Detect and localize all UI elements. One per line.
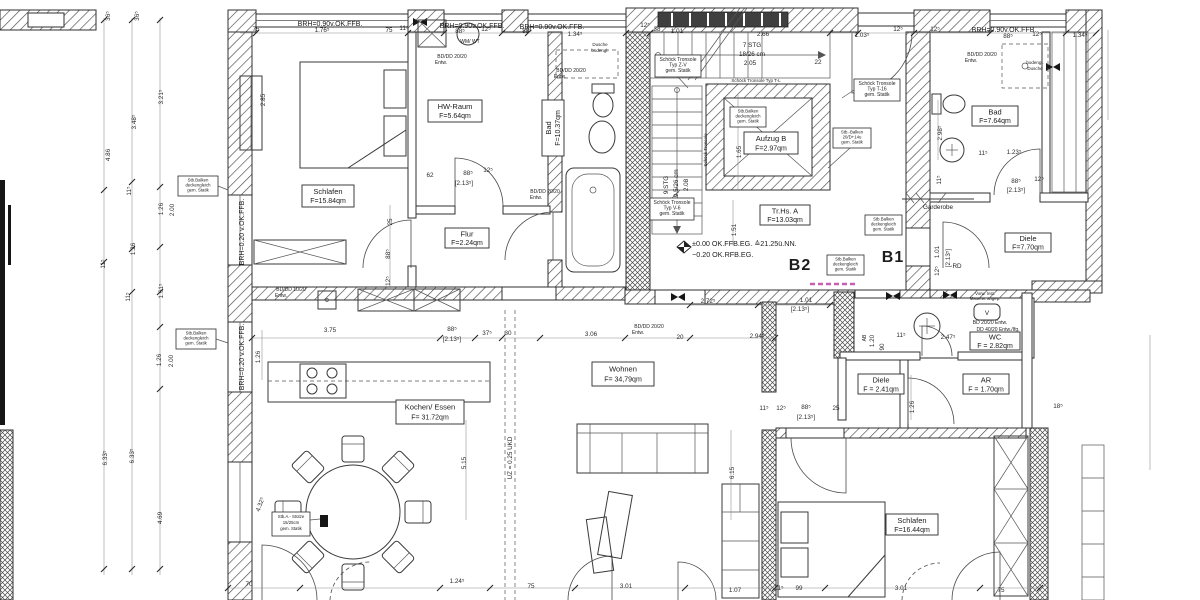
dimension-label: 88⁵ (1011, 178, 1021, 185)
dimension-label: 2.47⁵ (941, 334, 956, 341)
page-edge-marks (0, 10, 96, 600)
room-label-wc: WC F = 2.82qm (970, 332, 1020, 350)
dimension-label: 12⁵ (481, 26, 491, 33)
dimension-label: 11⁵ (978, 150, 988, 157)
room-label-schlafen-b2: Schlafen F=15.84qm (302, 185, 354, 207)
room-area: F = 2.41qm (863, 387, 899, 394)
wardrobe-schlafen-b1 (994, 436, 1028, 596)
note-line: gem. Statik (187, 188, 209, 193)
drain-note-bad-b1: BD/DD 20/20 Entw. (965, 52, 997, 64)
dimension-label: 11⁵ (759, 405, 769, 412)
note-stbbalken-2: Stb.Balken deckengleich gem. Statik (865, 215, 902, 235)
room-name: Bad (544, 121, 553, 134)
dimension-label: 1.76⁵ (315, 27, 330, 34)
dimension-label: 1.34⁵ (568, 31, 583, 38)
room-area: F=13.03qm (767, 217, 803, 224)
drain-line: Entw. (435, 60, 447, 66)
dimension-label: [2.13⁵] (797, 414, 816, 421)
dimension-label: 11⁵ (100, 259, 107, 269)
dimension-label: 5.15 (461, 456, 468, 469)
wardrobe-schlafen-b2 (254, 240, 346, 264)
label-ab-shaft: AB (862, 334, 868, 341)
bed-schlafen-b2 (240, 62, 408, 168)
dimension-label: 70 (245, 581, 253, 588)
sill-label-brh90: BRH=0.90v.OK.FFB. (298, 21, 363, 28)
dimension-label: 1.26 (156, 353, 163, 366)
dimension-label: 11⁵ (774, 585, 784, 592)
drain-note-hw: BD/DD 20/20 Entw. (435, 54, 467, 66)
room-name: AR (981, 376, 992, 385)
dimension-label: 1.51 (731, 223, 738, 236)
room-name: Tr.Hs. A (772, 207, 798, 216)
dimension-label: 1.01 (800, 297, 813, 304)
note-stbbalken-1: Stb.Balken deckengleich gem. Statik (730, 107, 766, 127)
dimension-label: 12⁵ (893, 26, 903, 33)
dimension-label: [2.13⁵] (455, 180, 474, 187)
dimension-label: 37⁵ (482, 330, 492, 337)
note-line: gem. Statik (665, 68, 691, 74)
dimension-label: 75 (527, 583, 535, 590)
dimension-label: 1.26 (130, 242, 137, 255)
room-name: Wohnen (609, 365, 637, 374)
room-area: F=15.84qm (310, 198, 346, 205)
dimension-label: 2.00 (168, 354, 175, 367)
drain-line: Entw. (632, 330, 644, 336)
dimension-label: 75 (997, 587, 1005, 594)
note-line: gem. Statik (835, 267, 857, 272)
label-dusche-2: bodengl. (1026, 60, 1043, 65)
unit-label-b2: B2 (789, 257, 811, 274)
exterior-wall-right (1030, 10, 1104, 600)
dimension-label: 4.86 (105, 148, 112, 161)
dimension-label: 3.21⁵ (158, 89, 165, 104)
kitchen-counter (268, 362, 490, 402)
dimension-label: 2.98⁵ (937, 125, 944, 140)
label-vorwand-2: Mauerw. angep. (970, 296, 1001, 301)
sill-label-brh90: BRH=0.90v.OK.FFB. (440, 23, 505, 30)
dimension-label: 12⁵ (385, 276, 392, 286)
room-label-hw-raum: HW-Raum F=5.64qm (428, 100, 482, 122)
dimension-label: 11⁵ (936, 175, 943, 185)
column (320, 515, 328, 527)
dimension-label: 90 (879, 343, 886, 351)
dimension-label: 1.01 (671, 28, 684, 35)
note-line: gem. Statik (841, 140, 863, 145)
note-stbbalken-left-2: Stb.Balken deckengleich gem. Statik (176, 329, 228, 349)
room-label-aufzug: Aufzug B F=2.97qm (744, 132, 798, 154)
label-dusche-2b: Dusche (1027, 66, 1043, 71)
stair-run-label: 2.08 (683, 178, 690, 191)
dimension-label: 99 (795, 585, 803, 592)
dimension-label: 88⁵ (801, 404, 811, 411)
stair-riser-label: 18/26 cm (739, 51, 765, 58)
stair-steps-label: 9 STG (663, 176, 670, 194)
room-area: F= 34,79qm (604, 377, 642, 384)
dimension-label: 1.61⁵ (158, 283, 165, 298)
dimension-label: [2.13⁵] (1007, 187, 1026, 194)
room-name: Schlafen (313, 187, 342, 196)
room-label-wohnen: Wohnen F= 34,79qm (592, 362, 654, 386)
dimension-label: 1.65 (736, 145, 743, 158)
label-dusche-1b: bodengl. (591, 48, 608, 53)
dimension-label: 12⁵ (930, 26, 940, 33)
note-line: gem. Statik (864, 92, 890, 98)
sill-label-brh20: BRH=0.20 v.OK.FFB. (239, 324, 246, 391)
drain-line: Entw. (965, 58, 977, 64)
note-stbbalken-20d: Stb.-Balken 20/D+14u gem. Statik (828, 128, 871, 168)
dimension-label: 88⁵ (463, 170, 473, 177)
dimension-label: 3.06 (585, 331, 598, 338)
room-area: F= 31.72qm (411, 415, 449, 422)
floor-plan-page: Schlafen F=15.84qm HW-Raum F=5.64qm Bad … (0, 0, 1200, 600)
dimension-label: 88⁵ (455, 28, 465, 35)
room-area: F = 1.70qm (968, 387, 1004, 394)
tronsole-side-label: Schöck Tronsole (703, 133, 708, 167)
room-label-diele2: Diele F = 2.41qm (858, 374, 904, 394)
room-area: F=7.70qm (1012, 245, 1044, 252)
dimension-label: 11⁵ (126, 186, 133, 196)
drain-line: BD 20/20 Entw. (973, 320, 1007, 326)
room-label-garderobe: Garderobe (923, 204, 954, 211)
dimension-label: 12⁵ (1032, 31, 1042, 38)
dimension-label: 36⁵ (134, 11, 141, 21)
room-area: F = 2.82qm (977, 343, 1013, 350)
stair-run-label: 2.05 (744, 60, 757, 67)
dimension-label: 1.26 (909, 400, 916, 413)
drain-line: Entw. (530, 195, 542, 201)
dimension-label: 88⁵ (447, 326, 457, 333)
room-label-bad-b1: Bad F=7.64qm (972, 106, 1018, 126)
room-name: WC (989, 333, 1002, 342)
dimension-label: [2.13⁵] (791, 306, 810, 313)
room-name: Schlafen (897, 516, 926, 525)
room-name: Diele (1019, 234, 1036, 243)
dimension-label: 11⁵ (125, 292, 132, 302)
dimension-label: 62 (426, 172, 434, 179)
bathroom-b2-fixtures (556, 50, 620, 272)
dimension-label: 25 (387, 218, 394, 226)
room-area: F=16.44qm (894, 527, 930, 534)
dimension-label: 2.94⁵ (750, 333, 765, 340)
note-tronsole-t16: Schöck Tronsole Typ T-16 gem. Statik (842, 79, 900, 101)
room-label-diele-b1: Diele F=7.70qm (1005, 233, 1051, 252)
interior-walls (252, 32, 1090, 600)
dimension-label: 3.01 (895, 585, 908, 592)
dimension-label: 88⁵ (522, 28, 532, 35)
dimension-label: 12⁵ (640, 22, 650, 29)
label-uz-beam: UZ = 0.25 UKD (507, 436, 514, 479)
drain-line: DD 40/20 Entw./Ifg. (976, 327, 1019, 333)
room-area: F=2.24qm (451, 240, 483, 247)
room-name: Kochen/ Essen (405, 403, 455, 412)
note-tronsole-v6: Schöck Tronsole Typ V-6 gem. Statik (650, 190, 694, 220)
note-line: gem. Statik (659, 211, 685, 217)
sofa (577, 424, 708, 473)
dimension-label: 1.03⁵ (855, 32, 870, 39)
dimension-label: 1.26 (158, 202, 165, 215)
shelf-cabinet (722, 484, 759, 598)
dimension-label: 6.15 (729, 466, 736, 479)
dimension-label: 1.07 (729, 587, 742, 594)
level-marker-icon (677, 241, 691, 253)
dimension-label: 3.75 (324, 327, 337, 334)
label-dusche-1: Dusche (592, 42, 608, 47)
dimension-label: 12⁵ (483, 167, 493, 174)
dimension-label: 2.85 (260, 93, 267, 106)
dimension-label: 4.69 (157, 511, 164, 524)
room-name: Flur (461, 230, 474, 239)
level-line-1: ±0.00 OK.FFB.EG. ≙21.25ü.NN. (692, 239, 797, 248)
room-area: F=5.64qm (439, 113, 471, 120)
dimension-label: 12⁵ (934, 266, 941, 276)
note-tronsole-zv: Schöck Tronsole Typ Z-V gem. Statik (655, 55, 701, 88)
dimension-label: 30 (504, 330, 512, 337)
drain-line: Entw. (275, 293, 287, 299)
room-area: F=2.97qm (755, 146, 787, 153)
dimension-label: 1.20 (869, 334, 876, 347)
dimension-label: 18⁵ (1053, 403, 1063, 410)
note-line: 15/25cm (283, 520, 300, 525)
dimension-label: 3.48⁵ (131, 114, 138, 129)
note-line: gem. Statik (737, 119, 759, 124)
room-label-flur: Flur F=2.24qm (445, 228, 489, 248)
dimension-label: 2.66 (757, 31, 770, 38)
dimension-label: 2.72⁵ (701, 298, 716, 305)
label-wm-wt: WM/ WT (460, 39, 479, 45)
dimension-label: 6.33⁵ (102, 450, 109, 465)
dimension-label: [2.13⁵] (945, 249, 952, 268)
dimension-label: 88⁵ (1003, 33, 1013, 40)
unit-label-b1: B1 (882, 249, 904, 266)
dimension-label: 1.34⁵ (1073, 32, 1088, 39)
sill-label-brh20: BRH=0.20 v.OK.FFB. (239, 199, 246, 266)
floor-plan-canvas: Schlafen F=15.84qm HW-Raum F=5.64qm Bad … (0, 0, 1200, 600)
dimension-label: 20 (676, 334, 684, 341)
drain-line: Entw. (554, 74, 566, 80)
bed-schlafen-b1 (778, 502, 885, 597)
room-label-bad-b2: Bad F=10.37qm (542, 100, 564, 156)
note-line: gem. Statik (280, 526, 302, 531)
dimension-label: 1.24⁵ (450, 578, 465, 585)
dimension-label: 6.33⁵ (129, 448, 136, 463)
dimension-label: 11⁵ (399, 25, 409, 32)
dimension-label: 11⁵ (896, 332, 906, 339)
dimension-label: 22 (814, 59, 822, 66)
dimension-label: 1.26 (255, 350, 262, 363)
note-line: gem. Statik (185, 341, 207, 346)
dimension-label: 12⁵ (1034, 176, 1044, 183)
room-name: Bad (988, 108, 1001, 117)
room-name: Diele (872, 376, 889, 385)
dimension-label: 2.00 (169, 203, 176, 216)
room-name: HW-Raum (438, 102, 473, 111)
room-area: F=7.64qm (979, 118, 1011, 125)
stair-steps-label: 7 STG (743, 42, 761, 49)
dimension-label: 88⁵ (385, 249, 392, 259)
dimension-label: 3.01 (620, 583, 633, 590)
room-label-ar: AR F = 1.70qm (963, 374, 1009, 394)
room-label-treppenhaus: Tr.Hs. A F=13.03qm (760, 205, 810, 225)
drain-note-wohnen: BD/DD 20/20 Entw. (632, 324, 664, 336)
dimension-label: 4.32⁵ (255, 496, 267, 513)
room-name: Aufzug B (756, 134, 786, 143)
dimension-label: 75 (385, 27, 393, 34)
exterior-wall-top (228, 8, 1096, 32)
tronsole-inline-label: Schöck Tronsole Typ T-L (731, 78, 781, 83)
label-rd: RD (952, 263, 962, 270)
dimension-label: 1.01 (934, 245, 941, 258)
note-line: Stb.A.- Stütze (278, 514, 305, 519)
note-stuetze: Stb.A.- Stütze 15/25cm gem. Statik (272, 512, 320, 536)
dimension-label: 38 (653, 26, 661, 33)
dimension-label: 1.23⁵ (1007, 149, 1022, 156)
dimension-label: 75 (252, 26, 260, 33)
dimension-label: 36⁵ (105, 11, 112, 21)
level-line-2: −0.20 OK.RFB.EG. (692, 250, 753, 259)
room-label-kochen-essen: Kochen/ Essen F= 31.72qm (396, 400, 464, 424)
room-label-schlafen-b1: Schlafen F=16.44qm (886, 514, 938, 535)
room-area: F=10.37qm (555, 110, 562, 146)
coffee-tables (586, 491, 632, 573)
dimension-label: 25 (832, 405, 840, 412)
dimension-label: 12⁵ (776, 405, 786, 412)
note-line: gem. Statik (873, 227, 895, 232)
note-stbbalken-left-1: Stb.Balken deckengleich gem. Statik (178, 176, 228, 196)
dimension-label: [2.13⁵] (443, 336, 462, 343)
note-stbbalken-3: Stb.Balken deckengleich gem. Statik (827, 255, 864, 275)
